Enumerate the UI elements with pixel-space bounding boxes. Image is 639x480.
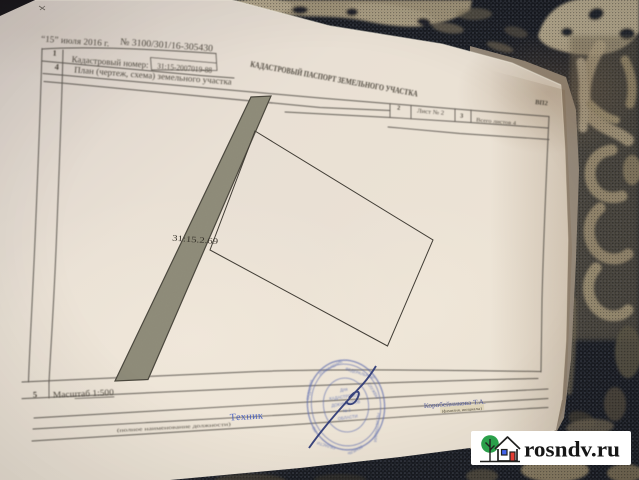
svg-text:rosndv.ru: rosndv.ru xyxy=(524,437,620,462)
